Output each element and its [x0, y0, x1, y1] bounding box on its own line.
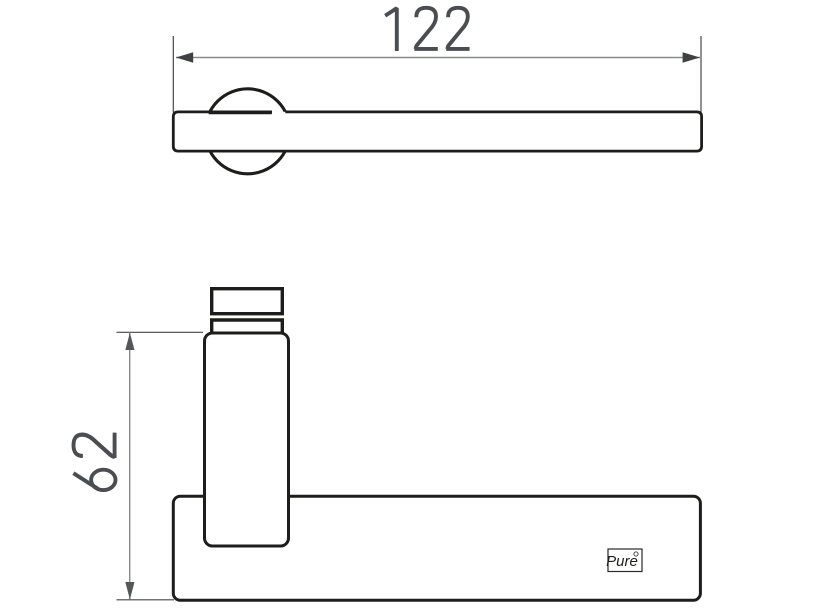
svg-text:Pure: Pure	[606, 553, 638, 570]
